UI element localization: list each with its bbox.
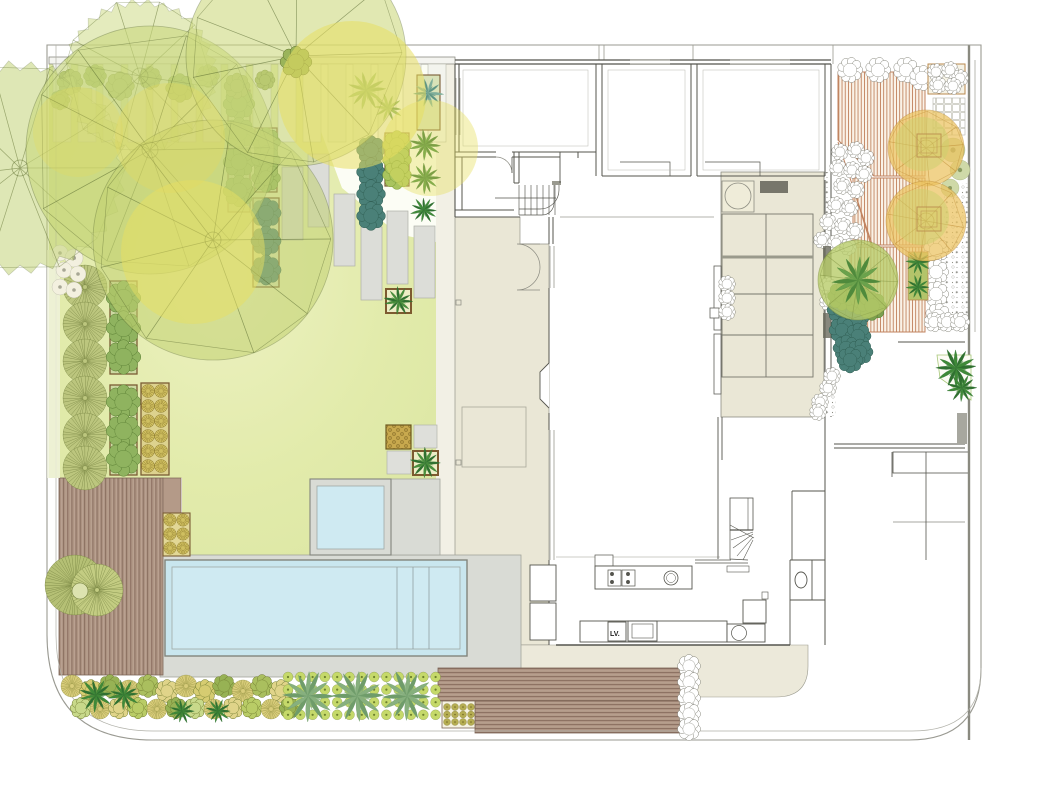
svg-text:LV.: LV. — [610, 631, 620, 638]
